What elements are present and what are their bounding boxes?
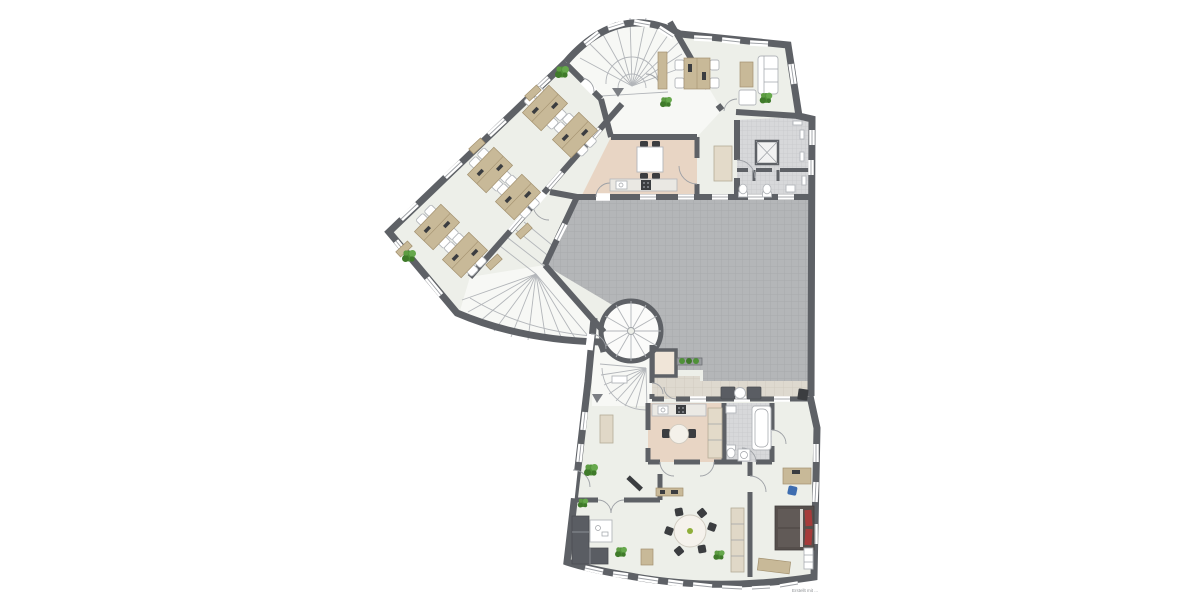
floor-plan-page: Erstellt mit ... xyxy=(0,0,1200,600)
floor-storage xyxy=(653,350,676,376)
lounge-mat xyxy=(721,387,735,399)
tall-cabinet xyxy=(714,146,732,181)
armchair xyxy=(739,90,756,105)
lounge-mat xyxy=(747,387,761,399)
hall-wardrobe xyxy=(600,415,613,443)
sideboard xyxy=(658,52,667,89)
break-table xyxy=(637,147,663,172)
coffee-table xyxy=(740,62,753,87)
pillow xyxy=(804,510,812,526)
floor-plan-image: Erstellt mit ... xyxy=(0,0,1200,600)
grill xyxy=(797,388,808,400)
side-table xyxy=(735,388,746,399)
coffee-table xyxy=(590,520,612,542)
sideboard xyxy=(641,549,653,565)
kitchen-tall-unit xyxy=(708,408,722,458)
washbasin xyxy=(726,406,736,413)
watermark-text: Erstellt mit ... xyxy=(792,588,818,593)
desk-chair xyxy=(787,485,798,496)
pillow xyxy=(804,529,812,545)
washing-machine xyxy=(738,449,750,461)
sofa xyxy=(758,56,778,94)
kitchen-table xyxy=(670,425,689,444)
